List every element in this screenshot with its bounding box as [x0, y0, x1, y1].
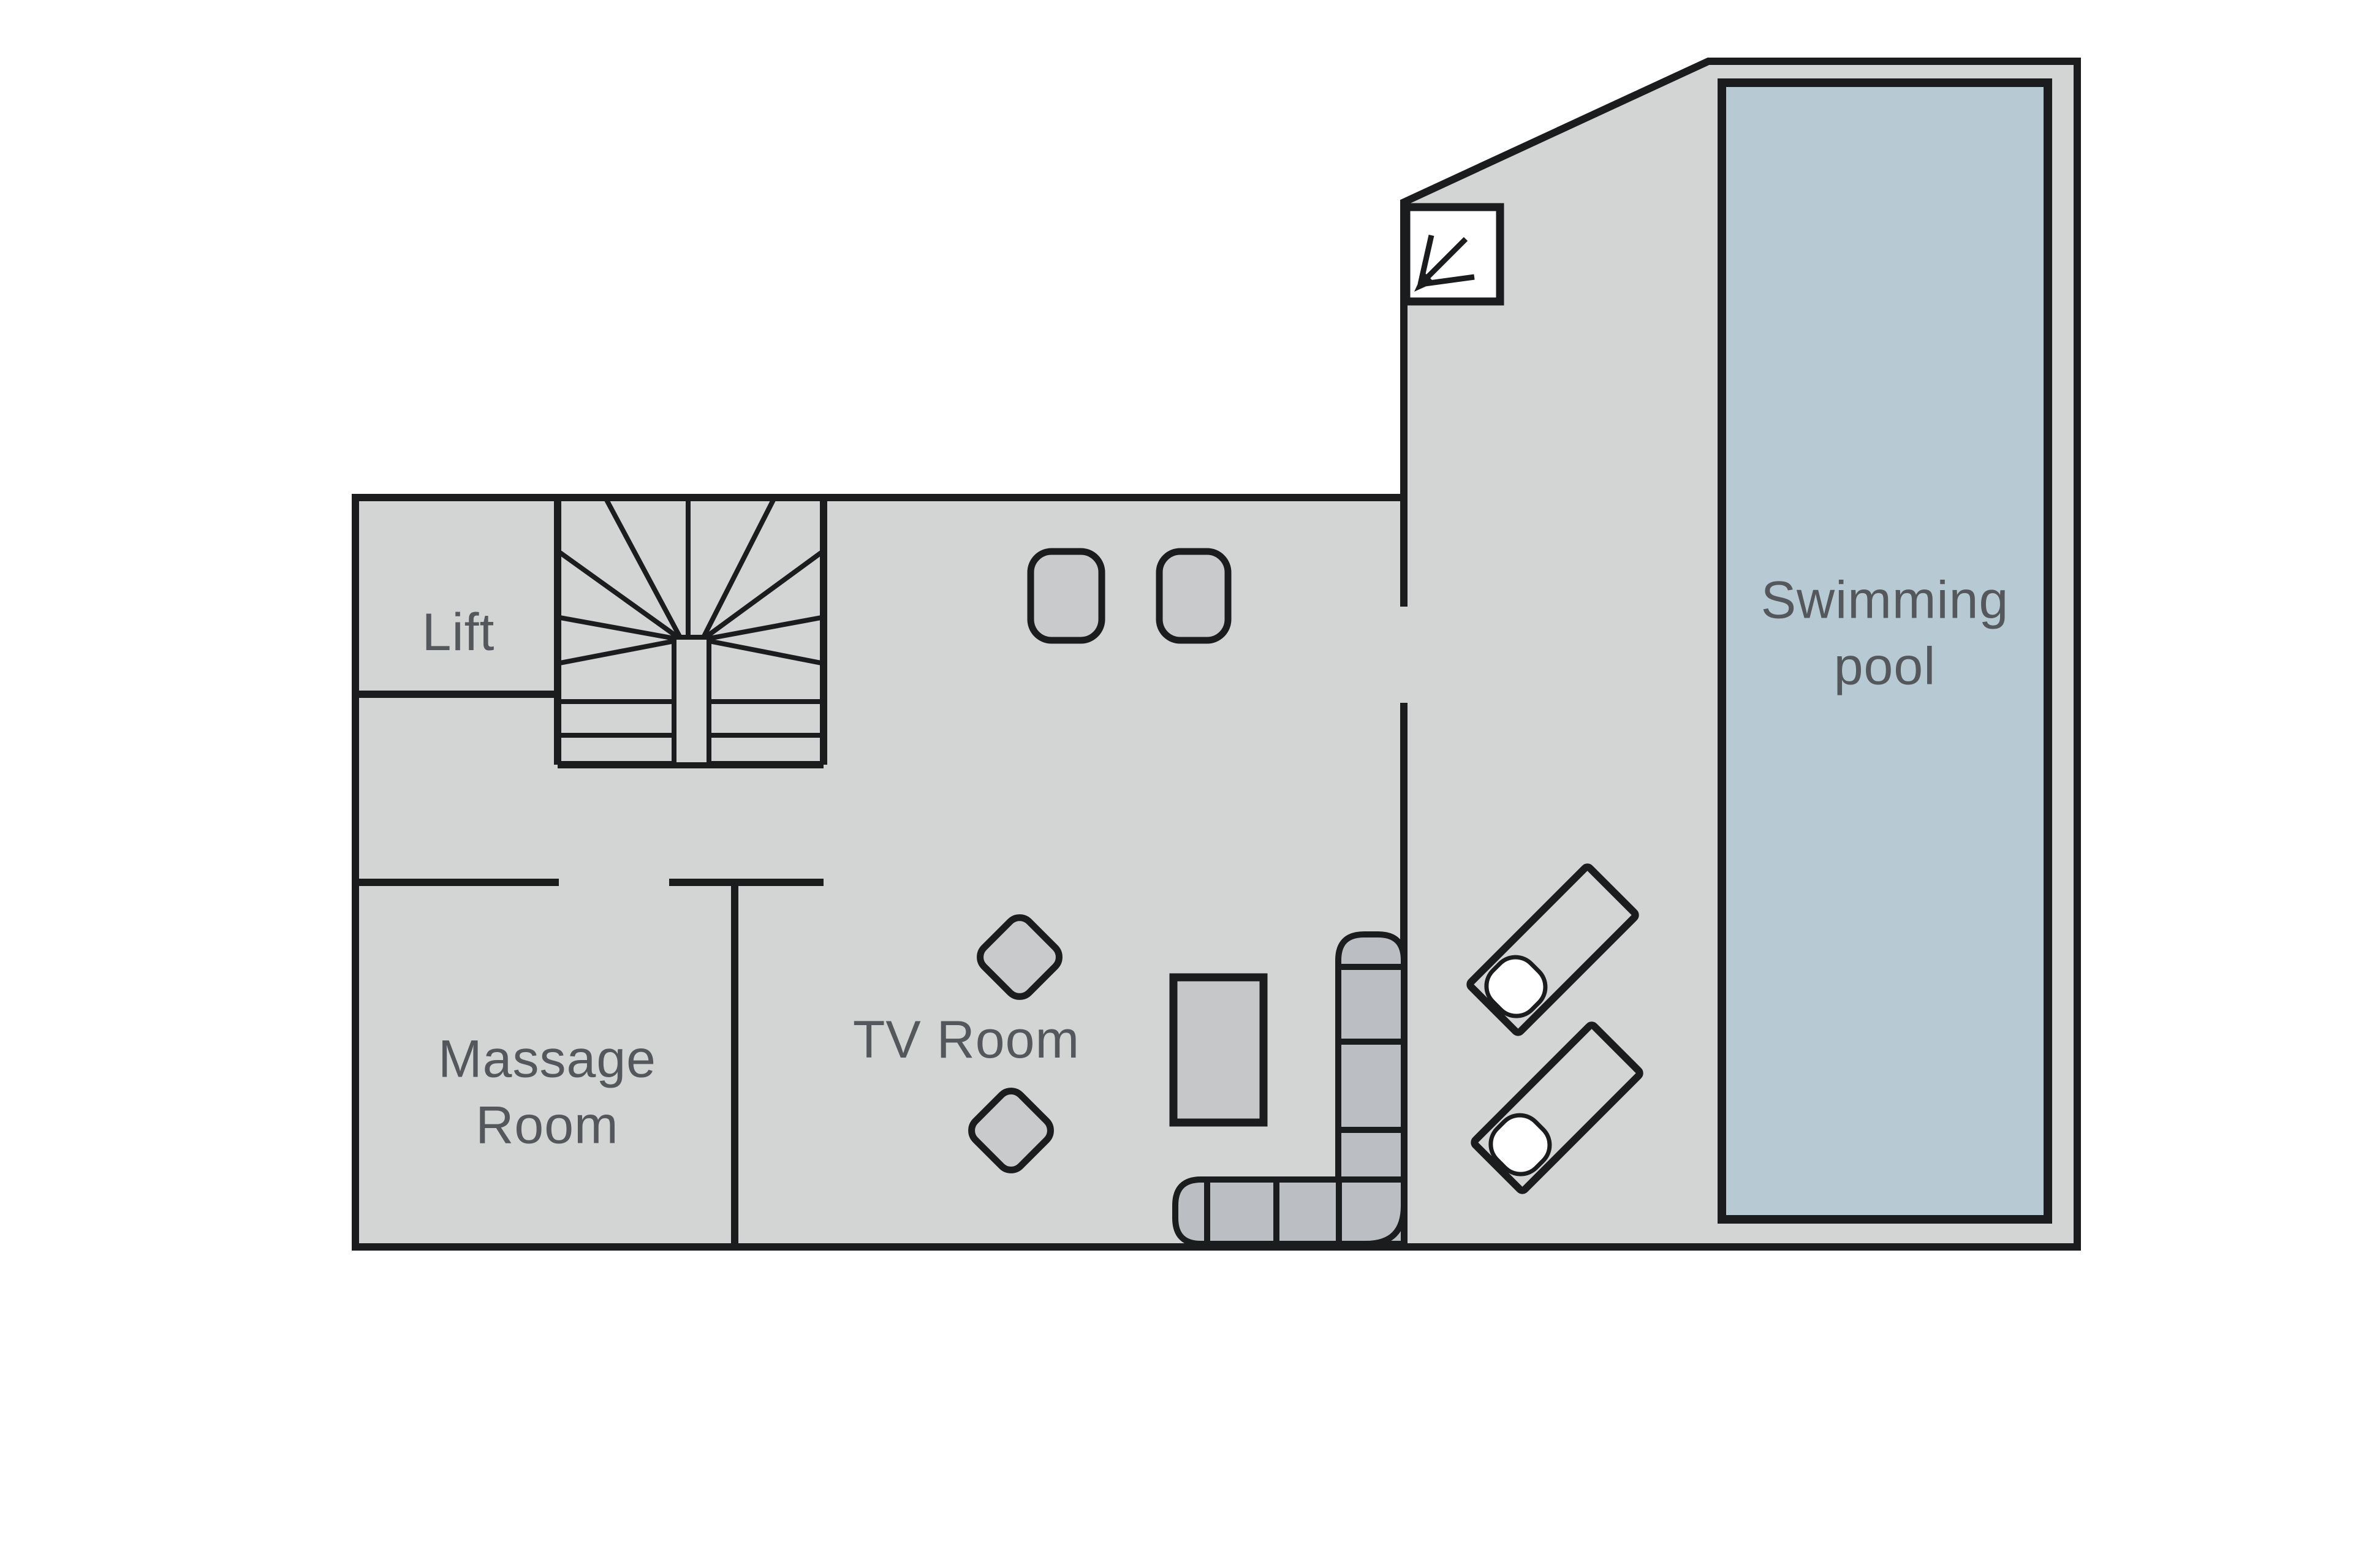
swimming-pool-label-line2: pool [1761, 634, 2009, 700]
view-direction-marker [1406, 207, 1500, 301]
stool [1159, 551, 1228, 640]
lift-room-label: Lift [422, 599, 495, 665]
massage-room-label-line1: Massage [438, 1026, 656, 1093]
tv-room-label: TV Room [853, 1007, 1080, 1073]
massage-room-label-line2: Room [438, 1093, 656, 1159]
stool [1031, 551, 1102, 640]
stair-newel-wall [674, 637, 709, 765]
coffee-table [1173, 977, 1264, 1123]
swimming-pool-label: Swimming pool [1761, 567, 2009, 700]
floorplan-page: Lift Massage Room TV Room Swimming pool [0, 0, 2353, 1568]
swimming-pool-label-line1: Swimming [1761, 567, 2009, 634]
massage-room-label: Massage Room [438, 1026, 656, 1159]
floorplan-drawing [0, 0, 2353, 1568]
